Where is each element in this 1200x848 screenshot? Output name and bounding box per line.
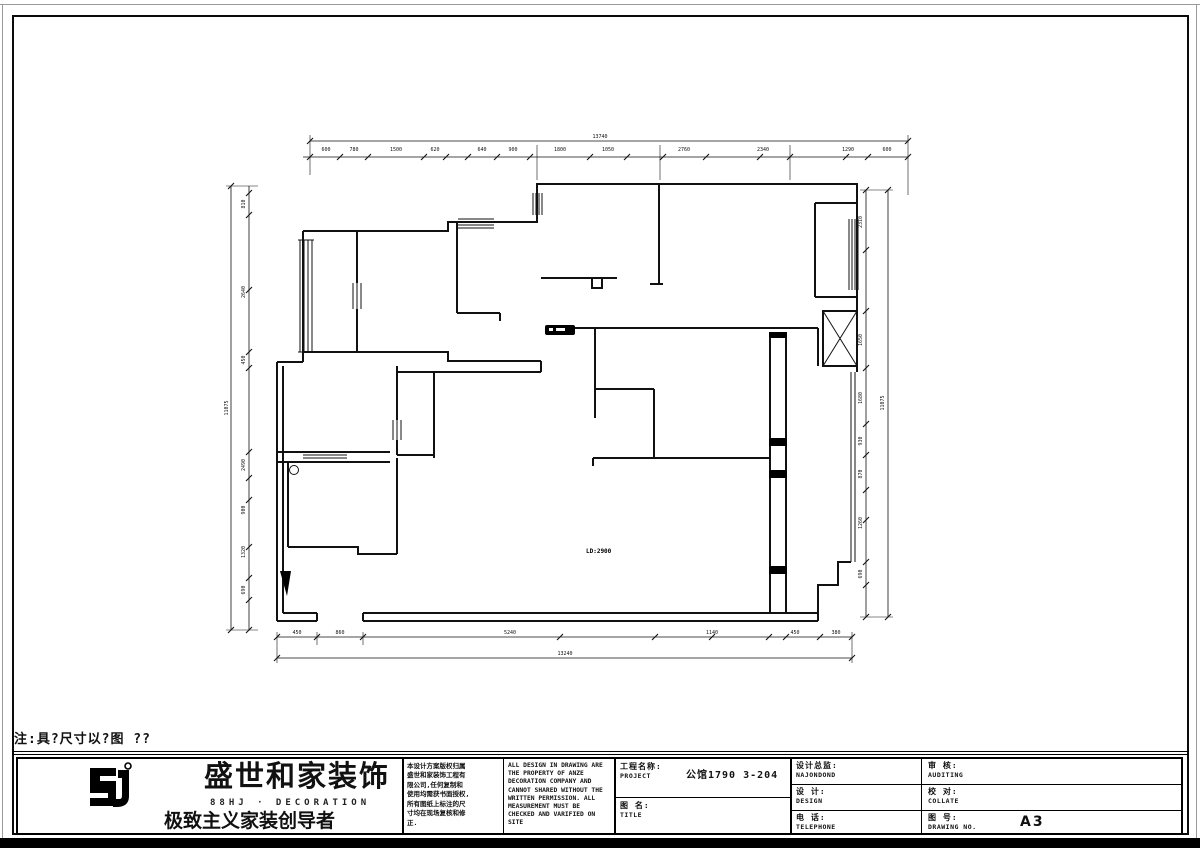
- dimension-text: 2490: [241, 459, 247, 471]
- title-block: 盛世和家装饰 88HJ · DECORATION 极致主义家装创导者 本设计方案…: [16, 757, 1183, 835]
- drawing-no-value: A3: [1020, 814, 1045, 832]
- room-size-label: LD:2900: [586, 548, 612, 555]
- collate-cell: 校 对: COLLATE: [928, 787, 1178, 805]
- sj-logo-icon: [88, 762, 132, 808]
- dimension-text: 1800: [554, 147, 566, 153]
- general-note: 注:具?尺寸以?图 ??: [14, 728, 151, 747]
- dimension-text: 690: [241, 585, 247, 594]
- dimension-text: 690: [858, 569, 864, 578]
- project-value: 公馆1790 3-204: [686, 770, 778, 783]
- drawing-no-label-en: DRAWING NO.: [928, 823, 1178, 831]
- director-cell: 设计总监: NAJONDOND: [796, 761, 918, 779]
- titleblock-divider: [790, 759, 792, 833]
- drawing-title-cell: 图 名: TITLE: [620, 801, 788, 831]
- design-label-en: DESIGN: [796, 797, 918, 805]
- drawing-title-label-cn: 图 名:: [620, 801, 788, 811]
- design-label-cn: 设 计:: [796, 787, 918, 797]
- project-cell: 工程名称: PROJECT 公馆1790 3-204: [620, 762, 788, 796]
- titleblock-divider: [790, 810, 1181, 811]
- dimension-text: 1650: [858, 334, 864, 346]
- drawing-title-label-en: TITLE: [620, 811, 788, 819]
- dimension-text: 1500: [390, 147, 402, 153]
- floor-plan: LD:2900 13740600780150062064090018001050…: [0, 0, 1200, 848]
- dimension-text: 2760: [678, 147, 690, 153]
- window-hatches: [298, 193, 858, 562]
- dimension-text: 860: [335, 630, 344, 636]
- phone-label-en: TELEPHONE: [796, 823, 918, 831]
- dimension-text: 900: [508, 147, 517, 153]
- shaft-cross-icon: [823, 311, 857, 366]
- dimension-text: 5240: [504, 630, 516, 636]
- audit-label-cn: 审 核:: [928, 761, 1178, 771]
- dimension-text: 780: [349, 147, 358, 153]
- phone-label-cn: 电 话:: [796, 813, 918, 823]
- titleblock-divider: [790, 784, 1181, 785]
- director-value: NAJONDOND: [796, 771, 918, 779]
- audit-cell: 审 核: AUDITING: [928, 761, 1178, 779]
- bay-window: [851, 372, 855, 562]
- dimension-text: 380: [831, 630, 840, 636]
- section-marker-icon: [280, 571, 291, 596]
- dimension-text: 1260: [858, 517, 864, 529]
- drawing-sheet: { "colors": {"line":"#111111","backgroun…: [0, 0, 1200, 848]
- dimension-text: 640: [477, 147, 486, 153]
- phone-cell: 电 话: TELEPHONE: [796, 813, 918, 831]
- audit-label-en: AUDITING: [928, 771, 1178, 779]
- dimension-text: 2310: [858, 216, 864, 228]
- dimension-text: 1050: [602, 147, 614, 153]
- en-disclaimer: ALL DESIGN IN DRAWING ARE THE PROPERTY O…: [508, 762, 614, 827]
- drawing-no-label-cn: 图 号:: [928, 813, 1178, 823]
- director-label-cn: 设计总监:: [796, 761, 918, 771]
- titleblock-divider: [614, 797, 790, 798]
- design-cell: 设 计: DESIGN: [796, 787, 918, 805]
- door-pivot-icon: [290, 466, 299, 475]
- dimension-label-group: 1374060078015006206409001800105027602340…: [224, 134, 892, 657]
- dimension-text: 1680: [858, 392, 864, 404]
- dimension-text: 11075: [880, 395, 886, 410]
- wall-piers: [769, 332, 787, 574]
- logo-cell: 盛世和家装饰 88HJ · DECORATION 极致主义家装创导者: [88, 760, 398, 832]
- dimension-text: 900: [241, 505, 247, 514]
- brand-name: 盛世和家装饰: [204, 758, 390, 794]
- dimension-lines: [226, 135, 908, 663]
- dimension-text: 450: [241, 355, 247, 364]
- dimension-text: 620: [430, 147, 439, 153]
- dimension-ticks: [228, 138, 911, 661]
- wall-lines: [277, 184, 857, 621]
- collate-label-en: COLLATE: [928, 797, 1178, 805]
- titleblock-divider: [402, 759, 404, 833]
- dimension-text: 13740: [592, 134, 607, 140]
- dimension-text: 2640: [241, 286, 247, 298]
- dimension-text: 600: [321, 147, 330, 153]
- titleblock-divider: [921, 759, 922, 833]
- drawing-no-cell: 图 号: DRAWING NO. A3: [928, 813, 1178, 831]
- dimension-text: 11075: [224, 400, 230, 415]
- titleblock-divider: [503, 759, 504, 833]
- titleblock-divider: [614, 759, 616, 833]
- dimension-text: 2340: [757, 147, 769, 153]
- dimension-text: 1140: [706, 630, 718, 636]
- brand-slogan: 极致主义家装创导者: [164, 810, 335, 834]
- dimension-text: 600: [882, 147, 891, 153]
- dimension-text: 13240: [557, 651, 572, 657]
- door-tag-chip: [545, 325, 575, 335]
- dimension-text: 450: [790, 630, 799, 636]
- dimension-text: 1320: [241, 546, 247, 558]
- cn-disclaimer: 本设计方案版权归属 盛世和家装饰工程有 限公司,任何复制和 使用均需获书面授权,…: [407, 762, 503, 828]
- dimension-text: 810: [241, 199, 247, 208]
- collate-label-cn: 校 对:: [928, 787, 1178, 797]
- dimension-text: 1290: [842, 147, 854, 153]
- dimension-text: 870: [858, 469, 864, 478]
- dimension-text: 930: [858, 436, 864, 445]
- brand-subtitle: 88HJ · DECORATION: [210, 798, 370, 809]
- dimension-text: 450: [292, 630, 301, 636]
